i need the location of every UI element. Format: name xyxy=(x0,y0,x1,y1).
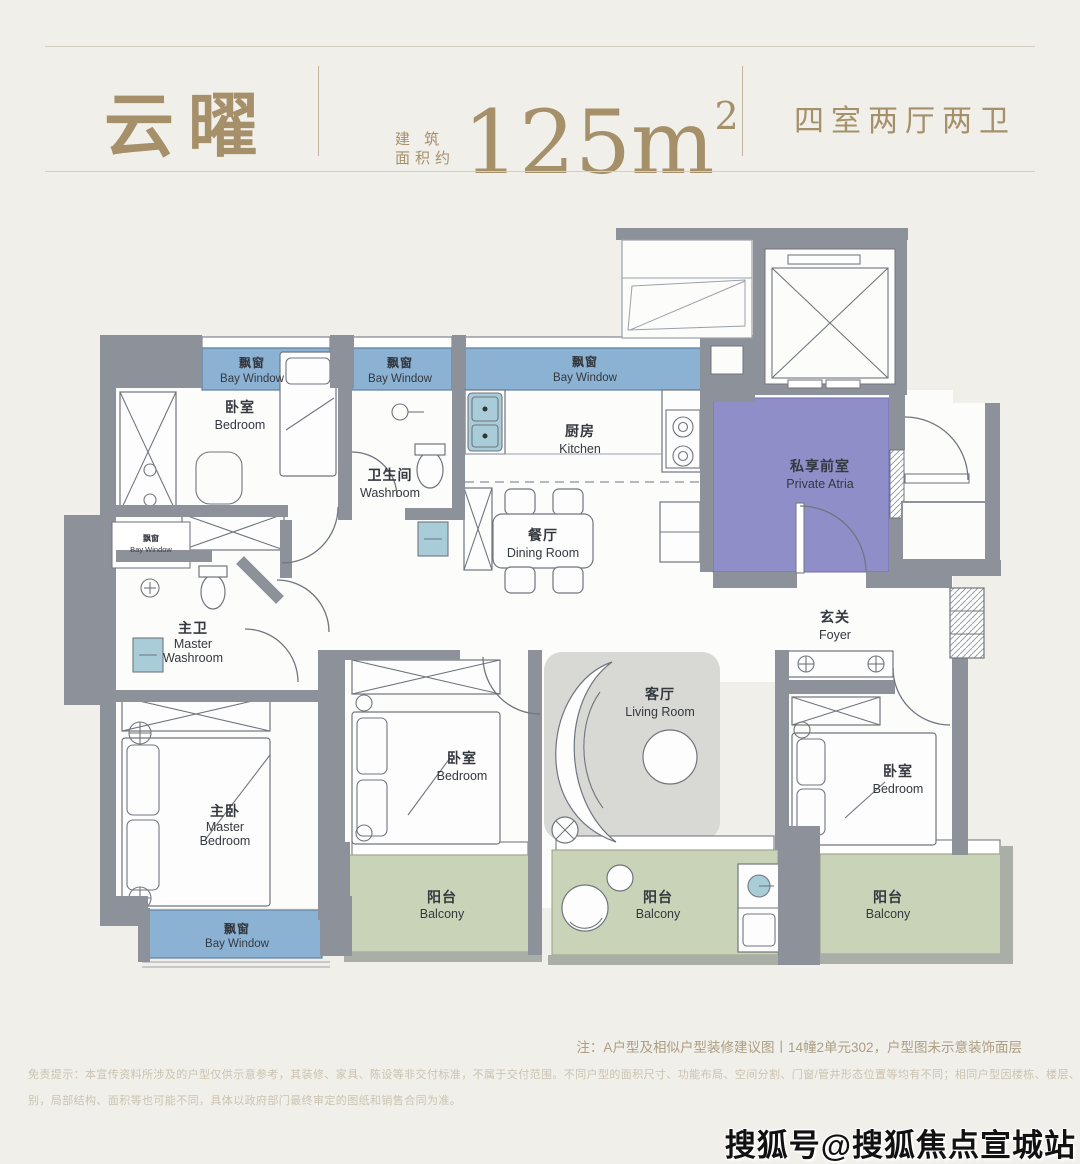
stairs xyxy=(622,240,752,338)
label-small-bay-en: Bay Window xyxy=(130,545,172,554)
label-bay1-en: Bay Window xyxy=(220,373,285,385)
balcony-chair xyxy=(562,885,608,931)
coffee-table xyxy=(643,730,697,784)
label-master-washroom-en2: Washroom xyxy=(163,651,223,665)
label-master-bedroom-en1: Master xyxy=(206,820,244,834)
floor-plan: 飘窗 Bay Window 飘窗 Bay Window 飘窗 Bay Windo… xyxy=(0,0,1080,1164)
label-bedroom2-zh: 卧室 xyxy=(447,750,477,766)
label-balcony3-zh: 阳台 xyxy=(873,889,903,905)
balcony-table xyxy=(607,865,633,891)
balcony-3 xyxy=(820,854,1004,954)
toilet-master xyxy=(201,575,225,609)
dining-chair xyxy=(505,567,535,593)
label-washroom-zh: 卫生间 xyxy=(368,467,413,483)
label-foyer-zh: 玄关 xyxy=(820,609,850,625)
bed-master xyxy=(122,738,270,906)
label-atria-en: Private Atria xyxy=(786,477,853,491)
label-kitchen-zh: 厨房 xyxy=(565,423,595,439)
kitchen-sink xyxy=(468,393,502,451)
label-dining-zh: 餐厅 xyxy=(527,527,558,543)
label-master-washroom-en1: Master xyxy=(174,637,212,651)
dining-chair xyxy=(553,489,583,515)
label-balcony2-zh: 阳台 xyxy=(643,889,673,905)
label-living-zh: 客厅 xyxy=(644,686,675,702)
label-master-washroom-zh: 主卫 xyxy=(178,620,208,636)
label-foyer-en: Foyer xyxy=(819,628,851,642)
label-living-en: Living Room xyxy=(625,705,694,719)
plan-note: 注：A户型及相似户型装修建议图丨14幢2单元302，户型图未示意装饰面层 xyxy=(576,1036,1022,1056)
label-balcony2-en: Balcony xyxy=(636,907,681,921)
label-small-bay-zh: 飘窗 xyxy=(143,533,159,543)
label-bay3-zh: 飘窗 xyxy=(572,354,598,369)
label-bay-master-zh: 飘窗 xyxy=(224,921,250,936)
bed-bedroom1 xyxy=(280,352,336,476)
disclaimer-line1: 免责提示：本宣传资料所涉及的户型仅供示意参考，其装修、家具、陈设等非交付标准，不… xyxy=(28,1066,1080,1082)
dining-chair xyxy=(505,489,535,515)
label-bedroom3-en: Bedroom xyxy=(873,782,924,796)
label-washroom-en: Washroom xyxy=(360,486,420,500)
label-bedroom1-en: Bedroom xyxy=(215,418,266,432)
label-bedroom1-zh: 卧室 xyxy=(225,399,255,415)
label-bedroom2-en: Bedroom xyxy=(437,769,488,783)
label-bay1-zh: 飘窗 xyxy=(239,355,265,370)
label-bay2-zh: 飘窗 xyxy=(387,355,413,370)
label-balcony1-zh: 阳台 xyxy=(427,889,457,905)
label-master-bedroom-en2: Bedroom xyxy=(200,834,251,848)
shaft-hatch xyxy=(950,588,984,658)
dining-chair xyxy=(553,567,583,593)
label-kitchen-en: Kitchen xyxy=(559,442,601,456)
label-master-bedroom-zh: 主卧 xyxy=(210,803,240,819)
disclaimer-line2: 别，局部结构、面积等也可能不同，具体以政府部门最终审定的图纸和销售合同为准。 xyxy=(28,1092,461,1108)
label-bedroom3-zh: 卧室 xyxy=(883,763,913,779)
floorplan-page: 云曜 建 筑 面积约 125m2 四室两厅两卫 xyxy=(0,0,1080,1164)
label-balcony3-en: Balcony xyxy=(866,907,911,921)
watermark: 搜狐号@搜狐焦点宣城站 xyxy=(725,1120,1076,1164)
label-bay2-en: Bay Window xyxy=(368,373,433,385)
label-dining-en: Dining Room xyxy=(507,546,579,560)
label-bay3-en: Bay Window xyxy=(553,372,618,384)
label-atria-zh: 私享前室 xyxy=(790,458,850,474)
label-balcony1-en: Balcony xyxy=(420,907,465,921)
label-bay-master-en: Bay Window xyxy=(205,938,270,950)
toilet-washroom xyxy=(417,452,443,488)
